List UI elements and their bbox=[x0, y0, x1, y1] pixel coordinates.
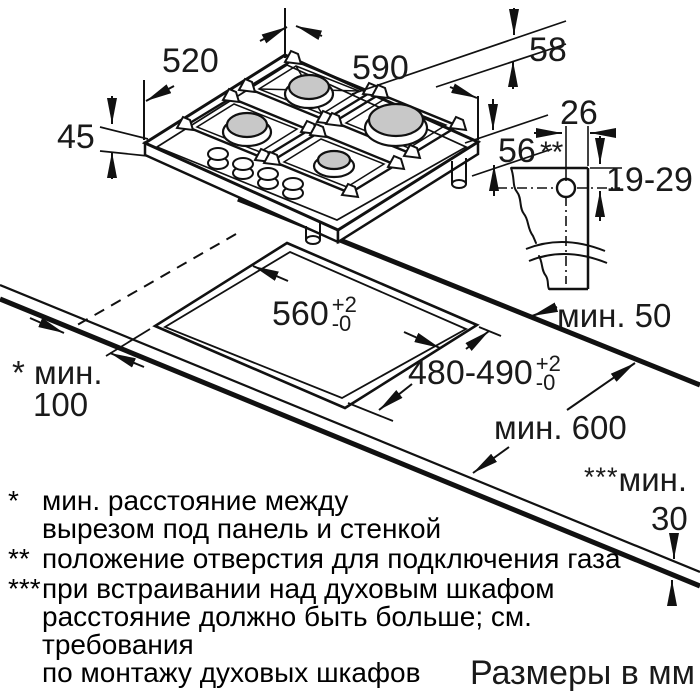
dim-520-label: 520 bbox=[162, 42, 219, 81]
burner-front-right bbox=[314, 151, 354, 177]
clearance-rear-label: мин. 50 bbox=[557, 297, 671, 335]
dim-19-29-label: 19-29 bbox=[606, 161, 693, 200]
cut-edge-lower bbox=[539, 256, 549, 289]
clearance-depth-label: мин. 600 bbox=[494, 409, 627, 447]
cutout-ext-bottom bbox=[348, 403, 393, 421]
dim-45-label: 45 bbox=[57, 118, 95, 157]
footnote-side-clearance: * мин. расстояние между вырезом под пане… bbox=[8, 487, 668, 543]
dim-58-label: 58 bbox=[529, 31, 567, 70]
cutout-width-dim: 560 +2 -0 bbox=[272, 295, 357, 334]
burner-front-left bbox=[223, 113, 271, 146]
cutout-depth-dim: 480-490 +2 -0 bbox=[408, 354, 561, 393]
cutout-ext-right bbox=[479, 327, 501, 336]
cutout-width-tolerance: +2 -0 bbox=[332, 295, 357, 333]
cutout-depth-tolerance: +2 -0 bbox=[536, 354, 561, 392]
cut-edge-upper bbox=[511, 168, 536, 243]
footnote-gas-hole: ** положение отверстия для подключения г… bbox=[8, 545, 668, 573]
dim-26-label: 26 bbox=[560, 94, 598, 133]
installation-diagram: 520 590 58 45 56 26 ** 19-29 560 +2 -0 4… bbox=[0, 0, 700, 700]
dim-56-label: 56 bbox=[498, 132, 536, 171]
clearance-side-value: 100 bbox=[33, 386, 88, 424]
gas-hole bbox=[557, 179, 575, 197]
gas-hole-marker: ** bbox=[540, 136, 563, 170]
hob-projection-dashed-line bbox=[72, 234, 236, 328]
dim-590-label: 590 bbox=[352, 49, 409, 88]
burner-back-right bbox=[365, 104, 427, 146]
burner-back-left bbox=[285, 75, 333, 108]
units-note: Размеры в мм bbox=[470, 654, 695, 693]
